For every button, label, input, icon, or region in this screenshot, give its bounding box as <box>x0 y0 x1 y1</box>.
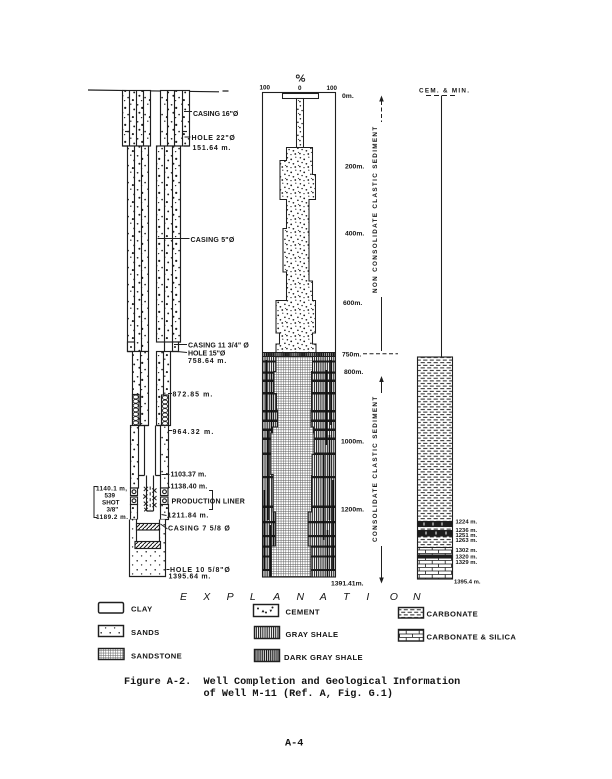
svg-text:SANDSTONE: SANDSTONE <box>131 652 182 661</box>
svg-text:N: N <box>297 591 305 603</box>
svg-text:1302 m.: 1302 m. <box>456 548 478 554</box>
svg-text:100: 100 <box>260 85 271 92</box>
svg-text:A-4: A-4 <box>285 739 303 750</box>
svg-text:SHOT: SHOT <box>102 500 120 507</box>
svg-text:HOLE 22"Ø: HOLE 22"Ø <box>192 135 236 142</box>
svg-text:1140.1 m,: 1140.1 m, <box>96 486 127 493</box>
svg-text:Figure A-2. Well Completion a: Figure A-2. Well Completion and Geologic… <box>124 676 460 688</box>
svg-text:CEM. & MIN.: CEM. & MIN. <box>419 88 469 95</box>
svg-text:CASING 11 3/4" Ø: CASING 11 3/4" Ø <box>188 343 249 350</box>
svg-text:0: 0 <box>298 85 302 92</box>
svg-text:400m.: 400m. <box>345 231 364 238</box>
svg-text:1189.2 m.: 1189.2 m. <box>96 514 128 521</box>
svg-text:1395.64 m.: 1395.64 m. <box>169 574 211 581</box>
svg-text:N: N <box>413 591 421 603</box>
svg-text:CARBONATE: CARBONATE <box>427 610 479 619</box>
svg-text:NON CONSOLIDATE CLASTIC SEDIME: NON CONSOLIDATE CLASTIC SEDIMENT <box>372 126 379 293</box>
svg-text:750m.: 750m. <box>342 352 361 359</box>
svg-text:200m.: 200m. <box>345 164 364 171</box>
svg-text:CASING 16"Ø: CASING 16"Ø <box>193 111 239 118</box>
svg-text:800m.: 800m. <box>344 369 363 376</box>
svg-text:539: 539 <box>105 493 116 500</box>
svg-text:A: A <box>319 591 327 603</box>
svg-text:HOLE 15"Ø: HOLE 15"Ø <box>188 351 226 358</box>
svg-text:CASING 5"Ø: CASING 5"Ø <box>191 237 235 244</box>
svg-text:1395.4 m.: 1395.4 m. <box>454 580 481 586</box>
svg-text:3/8": 3/8" <box>107 507 119 514</box>
svg-text:CARBONATE & SILICA: CARBONATE & SILICA <box>427 633 517 642</box>
svg-text:600m.: 600m. <box>343 300 362 307</box>
svg-text:964.32 m.: 964.32 m. <box>173 429 214 436</box>
svg-text:100: 100 <box>327 85 338 92</box>
svg-text:GRAY SHALE: GRAY SHALE <box>286 630 339 639</box>
svg-text:A: A <box>272 591 280 603</box>
svg-text:1329 m.: 1329 m. <box>456 560 478 566</box>
svg-text:1138.40 m.: 1138.40 m. <box>171 484 208 491</box>
svg-text:1103.37 m.: 1103.37 m. <box>171 472 207 479</box>
svg-text:1263 m.: 1263 m. <box>456 538 478 544</box>
svg-text:PRODUCTION LINER: PRODUCTION LINER <box>172 499 246 506</box>
svg-text:1391.41m.: 1391.41m. <box>331 581 364 588</box>
svg-text:0m.: 0m. <box>342 93 354 100</box>
svg-text:1224 m.: 1224 m. <box>456 520 478 526</box>
svg-text:1200m.: 1200m. <box>341 507 364 514</box>
svg-text:I: I <box>366 591 369 603</box>
svg-text:CASING 7 5/8 Ø: CASING 7 5/8 Ø <box>168 526 230 533</box>
svg-text:1000m.: 1000m. <box>341 439 364 446</box>
svg-text:151.64 m.: 151.64 m. <box>193 145 231 152</box>
svg-text:P: P <box>227 591 234 603</box>
svg-text:of Well M-11 (Ref. A, Fig. G.1: of Well M-11 (Ref. A, Fig. G.1) <box>204 688 394 700</box>
svg-text:758.64 m.: 758.64 m. <box>188 358 227 365</box>
svg-text:L: L <box>250 591 256 603</box>
svg-text:O: O <box>390 591 398 603</box>
svg-text:E: E <box>180 591 188 603</box>
svg-text:X: X <box>202 591 211 603</box>
svg-text:DARK GRAY SHALE: DARK GRAY SHALE <box>284 653 363 662</box>
svg-text:SANDS: SANDS <box>131 628 160 637</box>
svg-text:CEMENT: CEMENT <box>286 608 320 617</box>
svg-text:CLAY: CLAY <box>131 605 153 614</box>
svg-text:1211.84 m.: 1211.84 m. <box>168 513 209 520</box>
svg-text:CONSOLIDATE CLASTIC SEDIMENT: CONSOLIDATE CLASTIC SEDIMENT <box>372 396 379 542</box>
svg-text:872.85 m.: 872.85 m. <box>173 392 213 399</box>
